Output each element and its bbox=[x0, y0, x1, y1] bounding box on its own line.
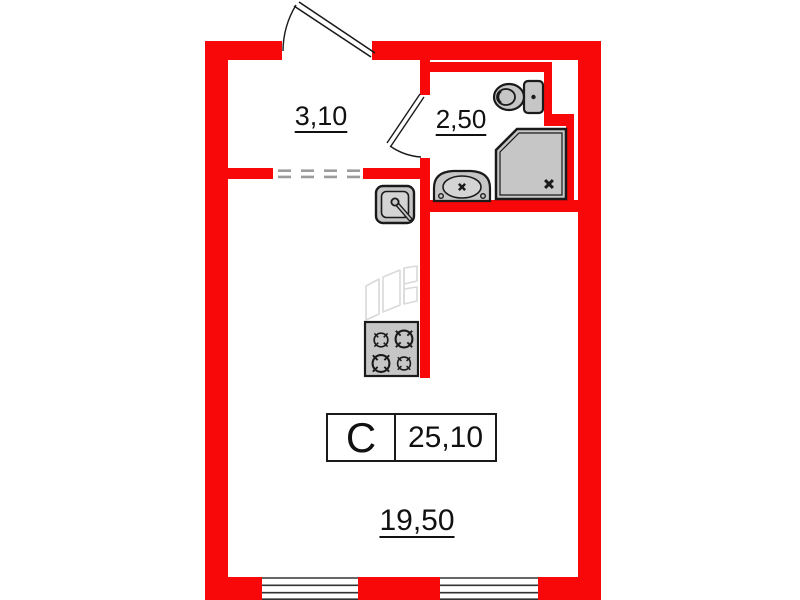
outer-wall-left bbox=[205, 41, 228, 600]
unit-type-label: С bbox=[328, 415, 396, 460]
bathroom-door bbox=[387, 94, 424, 157]
outer-wall-right bbox=[578, 41, 601, 600]
unit-total-area-label: 25,10 bbox=[396, 415, 495, 460]
outer-wall-top-right bbox=[372, 41, 601, 60]
bottom-wall-left bbox=[205, 577, 262, 600]
floor-plan: 3,10 2,50 19,50 С 25,10 bbox=[0, 0, 800, 600]
toilet-icon bbox=[494, 81, 543, 113]
kitchen-sink-icon bbox=[376, 186, 414, 223]
shower-tray-icon bbox=[496, 129, 566, 199]
washbasin-icon bbox=[434, 171, 490, 201]
living-room-area-label: 19,50 bbox=[374, 504, 460, 538]
entrance-door-swing-arc bbox=[283, 5, 296, 51]
kitchen-wall-main bbox=[420, 158, 430, 378]
bathroom-door-swing-arc bbox=[390, 146, 421, 157]
kitchen-wall-top-stub bbox=[420, 60, 430, 95]
entrance-door-leaf bbox=[294, 6, 371, 57]
outer-wall-top-left bbox=[205, 41, 282, 60]
bottom-wall-middle bbox=[358, 577, 440, 600]
hallway-area-label: 3,10 bbox=[288, 101, 354, 132]
bathroom-door-leaf bbox=[387, 94, 420, 143]
stove-icon bbox=[365, 322, 418, 376]
bottom-wall-right bbox=[538, 577, 601, 600]
appliance-sketch bbox=[366, 266, 417, 320]
hallway-divider-left bbox=[228, 168, 273, 179]
entrance-door bbox=[283, 2, 375, 57]
bathroom-wall-right-upper bbox=[544, 62, 552, 120]
window-left bbox=[262, 578, 358, 599]
unit-card: С 25,10 bbox=[326, 413, 497, 462]
window-right bbox=[440, 578, 538, 599]
hallway-divider-right bbox=[363, 168, 430, 179]
bathroom-wall-top bbox=[430, 62, 552, 72]
bathroom-area-label: 2,50 bbox=[430, 104, 492, 135]
dashed-passage bbox=[278, 171, 360, 177]
